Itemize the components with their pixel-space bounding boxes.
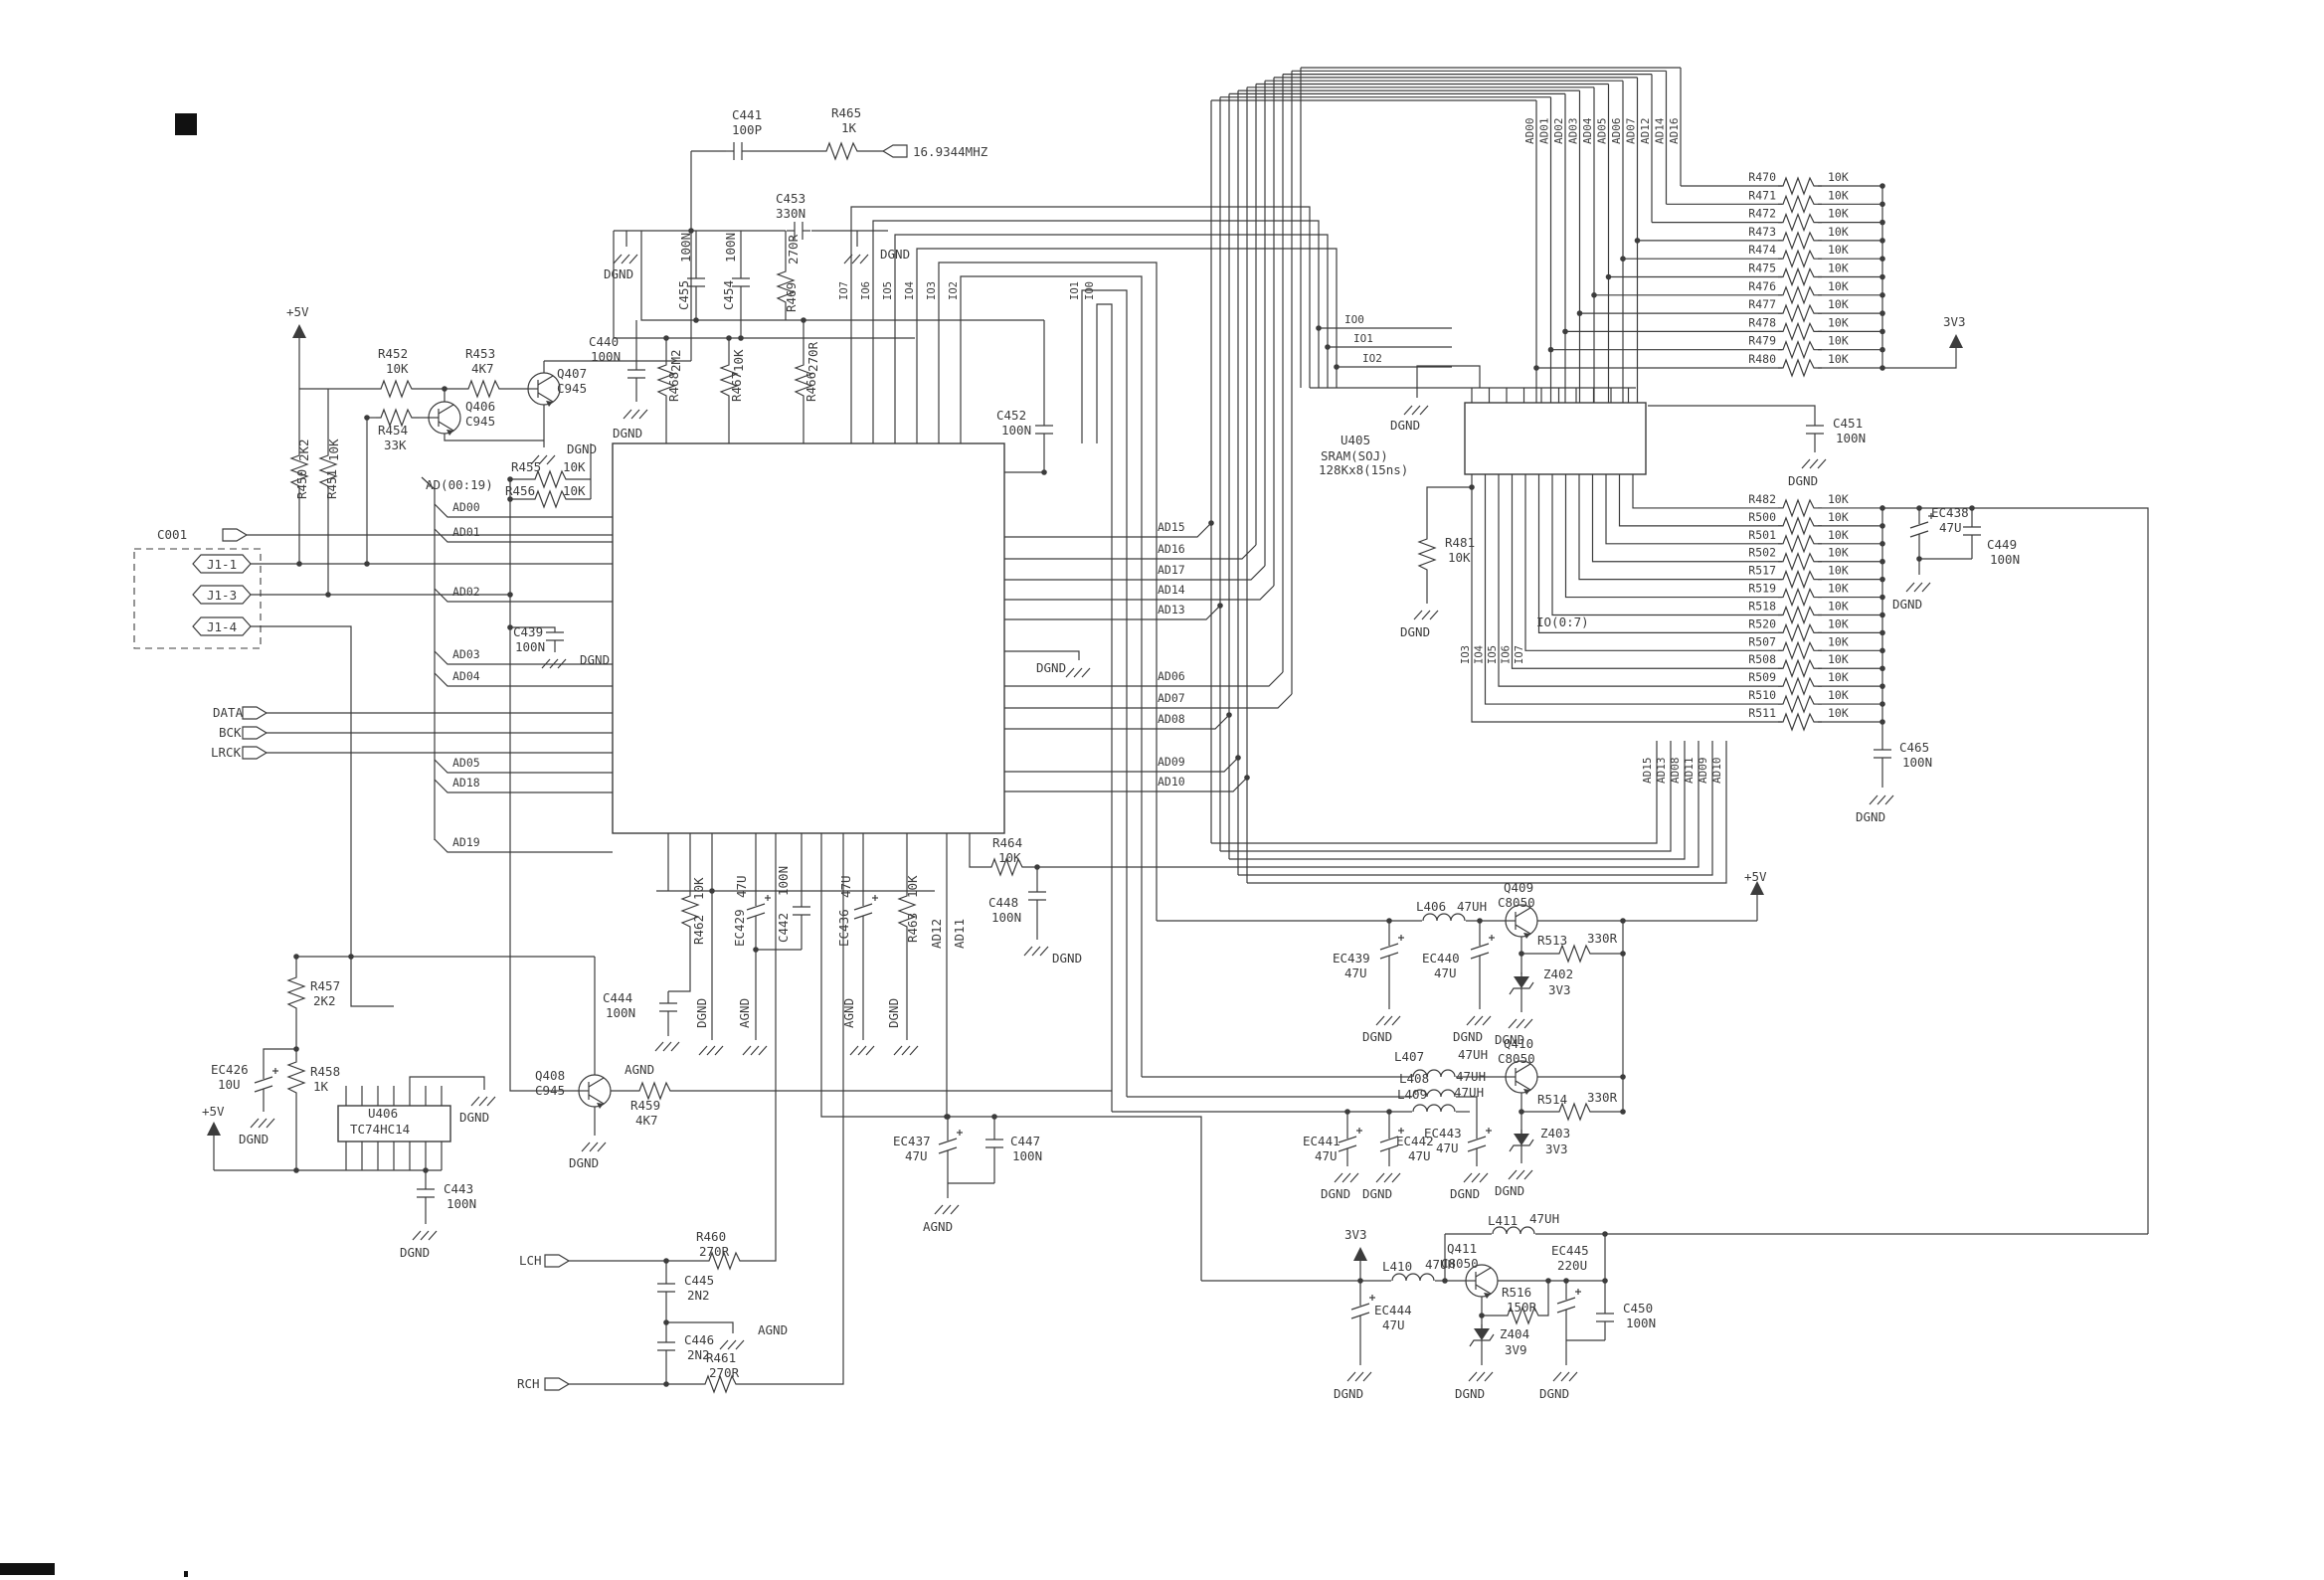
label: 10K bbox=[1828, 279, 1849, 293]
junction-dot bbox=[1879, 665, 1885, 671]
label: 10K bbox=[1828, 297, 1849, 311]
label: Q410 bbox=[1504, 1036, 1533, 1051]
ground-icon bbox=[943, 1205, 951, 1214]
label: 270R bbox=[709, 1365, 740, 1380]
ground-icon bbox=[1906, 583, 1914, 592]
wire bbox=[748, 833, 776, 1261]
junction-dot bbox=[1879, 523, 1885, 529]
ground-icon bbox=[1335, 1173, 1342, 1182]
junction-dot bbox=[801, 317, 806, 323]
resistor bbox=[1778, 696, 1822, 712]
ground-icon bbox=[1469, 1372, 1477, 1381]
label: AD10 bbox=[1710, 758, 1723, 785]
label: R510 bbox=[1748, 688, 1776, 702]
junction-dot bbox=[663, 1258, 669, 1264]
label: AD18 bbox=[452, 776, 480, 790]
resistor bbox=[821, 143, 865, 159]
label: AD01 bbox=[452, 525, 480, 539]
connector-flag bbox=[883, 145, 907, 157]
label: R514 bbox=[1537, 1092, 1567, 1107]
label: DGND bbox=[1052, 951, 1082, 966]
ground-icon bbox=[1477, 1372, 1485, 1381]
ground-icon bbox=[1384, 1173, 1392, 1182]
label: 10K bbox=[1828, 688, 1849, 702]
junction-dot bbox=[1879, 202, 1885, 208]
label: IO0 bbox=[1084, 281, 1096, 300]
label: R458 bbox=[310, 1064, 340, 1079]
junction-dot bbox=[1879, 238, 1885, 244]
label: C439 bbox=[513, 624, 543, 639]
label: R507 bbox=[1748, 634, 1776, 648]
label: DGND bbox=[1321, 1186, 1350, 1201]
label: EC445 bbox=[1551, 1243, 1589, 1258]
wire bbox=[1417, 366, 1480, 398]
ground-icon bbox=[1363, 1372, 1371, 1381]
label: 47UH bbox=[1458, 1047, 1488, 1062]
wire bbox=[1211, 741, 1657, 843]
junction-dot bbox=[1034, 864, 1040, 870]
ground-icon bbox=[1350, 1173, 1358, 1182]
label: 47UH bbox=[1454, 1085, 1484, 1100]
label: LRCK bbox=[211, 745, 242, 760]
label: IO4 bbox=[904, 281, 916, 300]
label: DGND bbox=[1788, 473, 1818, 488]
label: J1-3 bbox=[207, 588, 237, 603]
label: R511 bbox=[1748, 706, 1776, 720]
resistor bbox=[1778, 251, 1822, 266]
label: R520 bbox=[1748, 616, 1776, 630]
label: 10K bbox=[1828, 225, 1849, 239]
junction-dot bbox=[296, 561, 302, 567]
label: C444 bbox=[603, 990, 632, 1005]
label: AD14 bbox=[1654, 117, 1667, 144]
label: 10K bbox=[1828, 243, 1849, 257]
ground-icon bbox=[1870, 795, 1877, 804]
resistor bbox=[1778, 500, 1822, 516]
ground-icon bbox=[860, 255, 868, 263]
wire bbox=[668, 935, 690, 991]
label: DGND bbox=[400, 1245, 430, 1260]
label: AD06 bbox=[1158, 669, 1185, 683]
ground-icon bbox=[1914, 583, 1922, 592]
label: DGND bbox=[1453, 1029, 1483, 1044]
ground-icon bbox=[743, 1046, 751, 1055]
label: 3V3 bbox=[1943, 314, 1966, 329]
ground-icon bbox=[1342, 1173, 1350, 1182]
wire bbox=[1030, 741, 1698, 867]
label: 4K7 bbox=[635, 1113, 658, 1128]
transistor bbox=[546, 401, 553, 407]
label: IO4 bbox=[1474, 645, 1486, 664]
junction-dot bbox=[1879, 613, 1885, 618]
label: 10K bbox=[1828, 582, 1849, 596]
label: 3V3 bbox=[1548, 982, 1571, 997]
ground-icon bbox=[1032, 947, 1040, 956]
resistor bbox=[1778, 624, 1822, 640]
wire bbox=[264, 1049, 296, 1072]
label: C445 bbox=[684, 1273, 714, 1288]
label: IO5 bbox=[1487, 645, 1499, 664]
label: 47UH bbox=[1456, 1069, 1486, 1084]
junction-dot bbox=[1879, 365, 1885, 371]
ground-icon bbox=[751, 1046, 759, 1055]
label: 47U bbox=[1434, 966, 1457, 980]
label: Q406 bbox=[465, 399, 495, 414]
label: R473 bbox=[1748, 225, 1776, 239]
ic-box bbox=[1465, 403, 1646, 474]
ground-icon bbox=[715, 1046, 723, 1055]
label: 10K bbox=[1828, 188, 1849, 202]
label: Q408 bbox=[535, 1068, 565, 1083]
bus-tap bbox=[1004, 586, 1274, 600]
label: +5V bbox=[1744, 869, 1767, 884]
label: DGND bbox=[886, 998, 901, 1028]
label: AD06 bbox=[1610, 118, 1623, 145]
label: 16.9344MHZ bbox=[913, 144, 988, 159]
junction-dot bbox=[1879, 505, 1885, 511]
label: R474 bbox=[1748, 243, 1776, 257]
junction-dot bbox=[1969, 505, 1975, 511]
label: 100N bbox=[1001, 423, 1031, 438]
label: 220U bbox=[1557, 1258, 1587, 1273]
ground-icon bbox=[1040, 947, 1048, 956]
label: IO2 bbox=[1362, 352, 1382, 365]
ground-icon bbox=[1802, 459, 1810, 468]
page-mark bbox=[175, 113, 197, 135]
junction-dot bbox=[1442, 1278, 1448, 1284]
label: IO7 bbox=[1514, 645, 1525, 664]
label: DGND bbox=[1362, 1029, 1392, 1044]
label: DATA bbox=[213, 705, 244, 720]
resistor bbox=[1778, 642, 1822, 658]
label: 100N bbox=[776, 866, 791, 896]
ground-icon bbox=[1517, 1019, 1524, 1028]
junction-dot bbox=[1357, 1278, 1363, 1284]
label: DGND bbox=[580, 652, 610, 667]
label: 47UH bbox=[1529, 1211, 1559, 1226]
transistor bbox=[439, 422, 453, 431]
junction-dot bbox=[507, 476, 513, 482]
ground-icon bbox=[1384, 1016, 1392, 1025]
ground-icon bbox=[1392, 1173, 1400, 1182]
transistor bbox=[589, 1095, 604, 1104]
connector-flag bbox=[545, 1378, 569, 1390]
ground-icon bbox=[1414, 611, 1422, 619]
ground-icon bbox=[1376, 1016, 1384, 1025]
junction-dot bbox=[1879, 719, 1885, 725]
label: C442 bbox=[776, 913, 791, 943]
power-arrow-icon bbox=[207, 1122, 221, 1136]
label: AD03 bbox=[1567, 118, 1580, 145]
wire bbox=[1919, 541, 1972, 559]
label: 10K bbox=[1828, 564, 1849, 578]
label: IO1 bbox=[1353, 332, 1373, 345]
resistor bbox=[1778, 607, 1822, 622]
junction-dot bbox=[1879, 701, 1885, 707]
connector-flag bbox=[243, 707, 267, 719]
label: 3V3 bbox=[1344, 1227, 1367, 1242]
ground-icon bbox=[429, 1231, 437, 1240]
label: Q409 bbox=[1504, 880, 1533, 895]
transistor bbox=[439, 405, 453, 414]
ground-icon bbox=[1480, 1173, 1488, 1182]
junction-dot bbox=[1316, 325, 1322, 331]
label: C8050 bbox=[1441, 1256, 1479, 1271]
wire bbox=[1882, 346, 1956, 368]
wire bbox=[1546, 1281, 1548, 1316]
ground-icon bbox=[1412, 406, 1420, 415]
label: 10K bbox=[1828, 652, 1849, 666]
label: R472 bbox=[1748, 207, 1776, 221]
junction-dot bbox=[1879, 541, 1885, 547]
junction-dot bbox=[364, 415, 370, 421]
label: DGND bbox=[604, 266, 633, 281]
junction-dot bbox=[1879, 329, 1885, 335]
junction-dot bbox=[1879, 559, 1885, 565]
wire bbox=[1082, 290, 1127, 1097]
label: 270R bbox=[786, 234, 801, 264]
label: SRAM(SOJ) bbox=[1321, 448, 1388, 463]
label: C452 bbox=[996, 408, 1026, 423]
label: AD09 bbox=[1158, 755, 1185, 769]
label: AD00 bbox=[452, 500, 480, 514]
label: IO2 bbox=[948, 281, 960, 300]
ground-icon bbox=[471, 1097, 479, 1106]
label: IO7 bbox=[838, 281, 850, 300]
ground-icon bbox=[1509, 1019, 1517, 1028]
label: 10K bbox=[1828, 670, 1849, 684]
junction-dot bbox=[1545, 1278, 1551, 1284]
label: EC444 bbox=[1374, 1303, 1412, 1317]
label: C455 bbox=[676, 280, 691, 310]
label: AD16 bbox=[1668, 118, 1681, 145]
label: 10K bbox=[1448, 550, 1471, 565]
ground-icon bbox=[850, 1046, 858, 1055]
label: 2K2 bbox=[296, 439, 311, 461]
label: AGND bbox=[841, 998, 856, 1028]
junction-dot bbox=[738, 335, 744, 341]
ground-icon bbox=[858, 1046, 866, 1055]
label: +5V bbox=[286, 304, 309, 319]
label: EC437 bbox=[893, 1134, 931, 1148]
wire bbox=[351, 957, 394, 1006]
resistor bbox=[1778, 554, 1822, 570]
label: C446 bbox=[684, 1332, 714, 1347]
label: R477 bbox=[1748, 297, 1776, 311]
label: R502 bbox=[1748, 546, 1776, 560]
label: C8050 bbox=[1498, 895, 1535, 910]
label: TC74HC14 bbox=[350, 1122, 410, 1137]
junction-dot bbox=[663, 1381, 669, 1387]
label: AD02 bbox=[1552, 118, 1565, 145]
ground-icon bbox=[1472, 1173, 1480, 1182]
transistor bbox=[538, 393, 553, 402]
transistor bbox=[447, 430, 453, 436]
label: 100N bbox=[515, 639, 545, 654]
label: AD12 bbox=[929, 919, 944, 949]
junction-dot bbox=[1879, 183, 1885, 189]
label: EC429 bbox=[732, 909, 747, 947]
label: DGND bbox=[1856, 809, 1885, 824]
bus-wire bbox=[1539, 474, 1783, 632]
junction-dot bbox=[1879, 683, 1885, 689]
label: AD15 bbox=[1641, 758, 1654, 785]
label: AD13 bbox=[1655, 758, 1668, 785]
label: EC426 bbox=[211, 1062, 249, 1077]
label: 47U bbox=[1436, 1141, 1459, 1155]
zener-diode bbox=[1514, 1134, 1529, 1145]
label: AD13 bbox=[1158, 603, 1185, 616]
wire bbox=[873, 221, 1319, 443]
label: R513 bbox=[1537, 933, 1567, 948]
label: R467 bbox=[729, 372, 744, 402]
ground-icon bbox=[590, 1142, 598, 1151]
label: AD19 bbox=[452, 835, 480, 849]
ground-icon bbox=[852, 255, 860, 263]
label: 10K bbox=[1828, 510, 1849, 524]
junction-dot bbox=[1344, 1109, 1350, 1115]
label: R476 bbox=[1748, 279, 1776, 293]
junction-dot bbox=[1519, 1109, 1524, 1115]
junction-dot bbox=[1563, 1278, 1569, 1284]
ground-icon bbox=[1420, 406, 1428, 415]
ground-icon bbox=[759, 1046, 767, 1055]
label: AD15 bbox=[1158, 520, 1185, 534]
label: 10K bbox=[1828, 262, 1849, 275]
label: 330R bbox=[1587, 931, 1618, 946]
resistor bbox=[1419, 534, 1435, 578]
ground-icon bbox=[259, 1119, 267, 1128]
ground-icon bbox=[1082, 668, 1090, 677]
junction-dot bbox=[1477, 918, 1483, 924]
label: AD04 bbox=[1581, 117, 1594, 144]
label: R516 bbox=[1502, 1285, 1531, 1300]
label: C945 bbox=[557, 381, 587, 396]
junction-dot bbox=[1620, 1109, 1626, 1115]
junction-dot bbox=[726, 335, 732, 341]
label: IO6 bbox=[1501, 645, 1513, 664]
ground-icon bbox=[479, 1097, 487, 1106]
label: 2N2 bbox=[687, 1288, 710, 1303]
label: 10K bbox=[1828, 352, 1849, 366]
label: 10K bbox=[1828, 616, 1849, 630]
label: Z402 bbox=[1543, 966, 1573, 981]
label: RCH bbox=[517, 1376, 540, 1391]
junction-dot bbox=[945, 1114, 951, 1120]
ground-icon bbox=[1885, 795, 1893, 804]
label: R500 bbox=[1748, 510, 1776, 524]
label: 47UH bbox=[1457, 899, 1487, 914]
label: Z403 bbox=[1540, 1126, 1570, 1141]
label: R457 bbox=[310, 978, 340, 993]
label: R469 bbox=[784, 282, 799, 312]
ground-icon bbox=[1553, 1372, 1561, 1381]
label: C945 bbox=[535, 1083, 565, 1098]
junction-dot bbox=[1620, 918, 1626, 924]
label: IO1 bbox=[1069, 281, 1081, 300]
resistor bbox=[1778, 233, 1822, 249]
wire bbox=[1229, 741, 1685, 859]
label: 10K bbox=[691, 877, 706, 900]
label: DGND bbox=[1334, 1386, 1363, 1401]
label: 2M2 bbox=[668, 349, 683, 372]
label: 10K bbox=[1828, 334, 1849, 348]
zener-diode bbox=[1514, 976, 1529, 988]
wire bbox=[1004, 651, 1079, 660]
label: 100N bbox=[991, 910, 1021, 925]
label: 47U bbox=[1939, 520, 1962, 535]
junction-dot bbox=[1620, 1074, 1626, 1080]
transistor bbox=[1476, 1285, 1491, 1294]
resistor bbox=[1778, 518, 1822, 534]
resistor bbox=[463, 381, 507, 397]
transistor bbox=[1523, 1089, 1530, 1095]
ground-icon bbox=[1877, 795, 1885, 804]
label: R475 bbox=[1748, 262, 1776, 275]
label: R470 bbox=[1748, 170, 1776, 184]
label: DGND bbox=[1539, 1386, 1569, 1401]
ground-icon bbox=[1509, 1170, 1517, 1179]
junction-dot bbox=[1879, 310, 1885, 316]
ground-icon bbox=[663, 1042, 671, 1051]
junction-dot bbox=[1879, 347, 1885, 353]
label: DGND bbox=[569, 1155, 599, 1170]
label: R451 bbox=[324, 469, 339, 499]
ground-icon bbox=[629, 255, 637, 263]
label: R450 bbox=[294, 469, 309, 499]
label: EC436 bbox=[836, 909, 851, 947]
label: C945 bbox=[465, 414, 495, 429]
ground-icon bbox=[1066, 668, 1074, 677]
label: DGND bbox=[567, 441, 597, 456]
junction-dot bbox=[1879, 630, 1885, 636]
label: AD07 bbox=[1158, 691, 1185, 705]
label: 3V3 bbox=[1545, 1141, 1568, 1156]
power-arrow-icon bbox=[292, 324, 306, 338]
resistor bbox=[1778, 215, 1822, 231]
label: R453 bbox=[465, 346, 495, 361]
junction-dot bbox=[1879, 256, 1885, 262]
label: 100N bbox=[1990, 552, 2020, 567]
label: 10K bbox=[326, 439, 341, 461]
ground-icon bbox=[631, 410, 639, 419]
ground-icon bbox=[728, 1340, 736, 1349]
ground-icon bbox=[1561, 1372, 1569, 1381]
ground-icon bbox=[1483, 1016, 1491, 1025]
label: Q407 bbox=[557, 366, 587, 381]
label: R509 bbox=[1748, 670, 1776, 684]
label: 47U bbox=[1344, 966, 1367, 980]
junction-dot bbox=[1916, 556, 1922, 562]
junction-dot bbox=[1620, 951, 1626, 957]
label: 150R bbox=[1507, 1300, 1537, 1315]
label: R456 bbox=[505, 483, 535, 498]
transistor bbox=[1516, 925, 1530, 934]
resistor bbox=[288, 972, 304, 1016]
label: EC440 bbox=[1422, 951, 1460, 966]
connector-flag bbox=[223, 529, 247, 541]
ground-icon bbox=[1818, 459, 1826, 468]
ground-icon bbox=[655, 1042, 663, 1051]
label: AD11 bbox=[1683, 758, 1696, 785]
wire bbox=[970, 833, 986, 867]
label: 10K bbox=[1828, 528, 1849, 542]
resistor bbox=[1778, 660, 1822, 676]
ground-icon bbox=[1524, 1019, 1532, 1028]
label: AGND bbox=[625, 1062, 654, 1077]
label: DGND bbox=[1892, 597, 1922, 612]
label: 270R bbox=[805, 341, 820, 372]
